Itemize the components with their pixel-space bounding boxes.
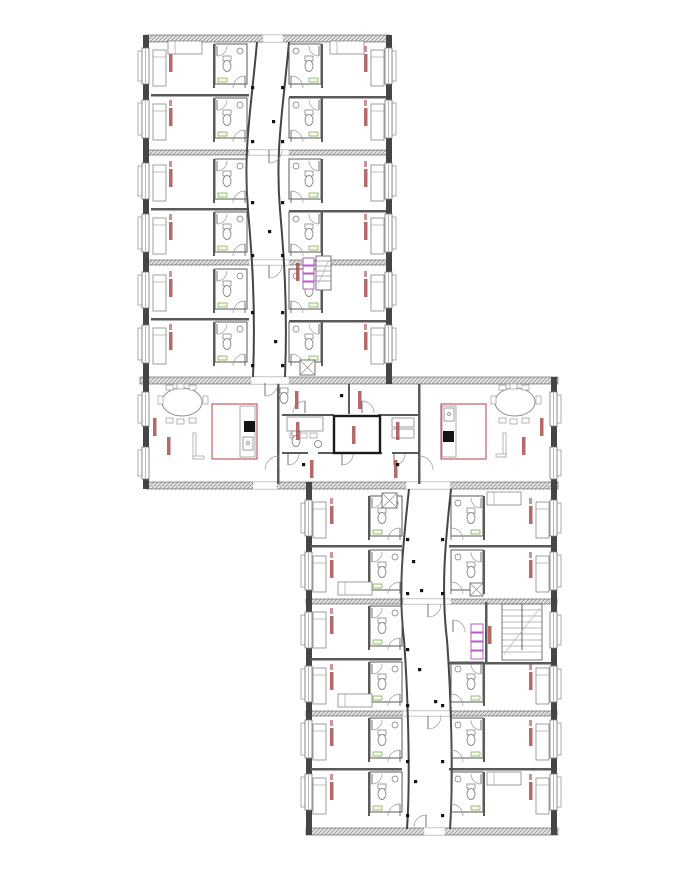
toilet-bowl (378, 735, 386, 746)
room-label-tag-small (169, 214, 172, 220)
room-label-tag-small (364, 161, 367, 167)
window-sill (557, 555, 561, 587)
toilet (467, 730, 475, 746)
door-tag-dot (251, 140, 254, 143)
chair (510, 419, 517, 424)
wall-opening (251, 377, 289, 384)
room-label-tag-small (330, 774, 333, 780)
locker-stack (471, 624, 483, 659)
room-label-tag-small (364, 324, 367, 330)
bed (536, 668, 549, 704)
sink (237, 326, 243, 332)
sink (237, 102, 243, 108)
sink (392, 610, 398, 616)
exterior-wall-hatched (140, 377, 558, 384)
exterior-wall (551, 377, 557, 835)
toilet (305, 224, 313, 240)
toilet (305, 56, 313, 72)
bed (153, 104, 166, 140)
chair (177, 384, 184, 389)
bed (371, 328, 384, 364)
toilet-bowl (223, 115, 231, 126)
window-sill (392, 275, 396, 305)
bed-frame (487, 492, 521, 505)
door-tag-dot (441, 814, 444, 817)
bed (313, 612, 326, 648)
wall-opening (263, 35, 283, 42)
room-label-tag (330, 782, 334, 800)
door-tag-dot (272, 120, 275, 123)
sink (293, 216, 299, 222)
window-sill (138, 103, 142, 135)
shelf-green (373, 752, 382, 756)
room-label-tag-small (169, 324, 172, 330)
bed (536, 724, 549, 760)
toilet (223, 224, 231, 240)
bed (536, 556, 549, 592)
window-sill (557, 615, 561, 645)
door-tag-dot (406, 538, 409, 541)
door-tag-dot (281, 86, 284, 89)
door-tag-dot (251, 201, 254, 204)
room-label-tag (169, 332, 173, 350)
bed (371, 275, 384, 311)
room-label-tag (295, 391, 299, 409)
room-label-tag-small (529, 664, 532, 670)
toilet-bowl (223, 61, 231, 72)
bed (536, 778, 549, 814)
bed-frame (168, 41, 202, 54)
room-label-tag (358, 391, 362, 409)
window (550, 666, 561, 702)
door-tag-dot (281, 140, 284, 143)
bed (153, 218, 166, 254)
shelf-green (471, 696, 480, 700)
window (138, 48, 149, 84)
shelf-green (309, 303, 318, 307)
window (301, 500, 312, 536)
door-tag-dot (281, 201, 284, 204)
locker (303, 282, 314, 289)
window-sill (138, 450, 142, 476)
window (550, 612, 561, 648)
bed-horizontal (338, 582, 372, 595)
window-sill (557, 723, 561, 755)
toilet-bowl (223, 339, 231, 350)
shelf-green (309, 356, 318, 360)
sink (455, 666, 461, 672)
wall-opening (253, 482, 277, 489)
shelf-green (471, 752, 480, 756)
toilet (467, 508, 475, 524)
bed (313, 556, 326, 592)
window-sill (301, 777, 305, 807)
toilet (378, 784, 386, 800)
window-sill (301, 615, 305, 645)
toilet (378, 508, 386, 524)
room-label-tag-small (330, 498, 333, 504)
toilet-bowl (305, 229, 313, 240)
sink (293, 326, 299, 332)
door-tag-dot (302, 463, 305, 466)
room-label-tag (330, 672, 334, 690)
window-sill (392, 328, 396, 360)
shelf-green (218, 356, 227, 360)
room-label-tag (364, 332, 368, 350)
room-label-tag (169, 169, 173, 187)
toilet (305, 334, 313, 350)
door-tag-dot (281, 254, 284, 257)
door-tag-dot (434, 700, 437, 703)
bed-horizontal (338, 694, 372, 707)
chair (189, 385, 196, 390)
interior-wall (378, 414, 420, 416)
window (138, 163, 149, 199)
room-label-tag (529, 506, 533, 524)
sink (237, 163, 243, 169)
window-sill (557, 450, 561, 476)
window (550, 447, 561, 479)
door-tag-dot (420, 589, 423, 592)
toilet-bowl (467, 679, 475, 690)
window-sill (301, 723, 305, 755)
window (138, 272, 149, 308)
sofa-mark (496, 454, 506, 457)
shelf-green (373, 584, 382, 588)
toilet (378, 730, 386, 746)
chair (491, 396, 496, 404)
interior-wall (151, 208, 249, 211)
toilet (467, 674, 475, 690)
table-top (495, 388, 535, 416)
window-sill (301, 555, 305, 587)
shelf-green (471, 530, 480, 534)
bed-frame (487, 772, 521, 785)
interior-wall (311, 768, 402, 771)
window-sill (301, 669, 305, 699)
bed (371, 50, 384, 86)
room-label-tag (352, 426, 356, 444)
room-label-tag (167, 437, 171, 455)
kitchen-sink (444, 408, 454, 421)
room-label-tag (330, 616, 334, 634)
window (138, 447, 149, 479)
bed (313, 502, 326, 538)
window-sill (138, 328, 142, 360)
door-tag-dot (412, 560, 415, 563)
toilet-bowl (223, 229, 231, 240)
toilet (223, 56, 231, 72)
chair (177, 419, 184, 424)
window-sill (301, 503, 305, 533)
door-tag-dot (406, 592, 409, 595)
toilet (223, 110, 231, 126)
window (138, 325, 149, 363)
interior-wall (151, 318, 249, 321)
room-label-tag-small (529, 498, 532, 504)
room-label-tag (364, 279, 368, 297)
bed (153, 165, 166, 201)
chair (536, 396, 541, 404)
bed (313, 668, 326, 704)
bed (536, 502, 549, 538)
toilet-bowl (305, 61, 313, 72)
sink (293, 102, 299, 108)
bed-horizontal (487, 492, 521, 505)
toilet (305, 171, 313, 187)
toilet (280, 388, 288, 404)
door-tag-dot (274, 340, 277, 343)
door-tag-dot (406, 760, 409, 763)
toilet (467, 784, 475, 800)
door-tag-dot (441, 760, 444, 763)
room-label-tag (153, 418, 157, 436)
room-label-tag-small (529, 552, 532, 558)
room-label-tag-small (330, 608, 333, 614)
shelf-green (218, 78, 227, 82)
floor-plan-page (0, 0, 674, 881)
room-label-tag (529, 560, 533, 578)
window (385, 214, 396, 252)
wall-opening (424, 828, 445, 835)
shower-box (300, 360, 315, 375)
bed (153, 50, 166, 86)
chair (203, 396, 208, 404)
room-label-tag-small (169, 161, 172, 167)
room-label-tag (364, 222, 368, 240)
sink (455, 776, 461, 782)
window-sill (138, 217, 142, 249)
window (385, 163, 396, 199)
chair (158, 396, 163, 404)
toilet (223, 171, 231, 187)
window (301, 612, 312, 648)
interior-wall (348, 384, 350, 414)
window-sill (138, 275, 142, 305)
window-sill (392, 166, 396, 196)
room-label-tag (169, 279, 173, 297)
door-tag-dot (396, 463, 399, 466)
bed (313, 778, 326, 814)
window (138, 100, 149, 138)
shower-box (470, 583, 483, 596)
stove (244, 421, 255, 432)
toilet-bowl (378, 567, 386, 578)
room-label-tag (364, 108, 368, 126)
door-tag-dot (406, 704, 409, 707)
door-tag-dot (268, 230, 271, 233)
bed (153, 275, 166, 311)
door-tag-dot (441, 704, 444, 707)
shelf-green (218, 246, 227, 250)
room-label-tag (296, 422, 300, 440)
room-label-tag-small (364, 46, 367, 52)
room-label-tag-small (364, 214, 367, 220)
locker-stack (303, 258, 314, 289)
window-sill (138, 51, 142, 81)
bed (371, 104, 384, 140)
window (385, 100, 396, 138)
bed (371, 165, 384, 201)
window (301, 666, 312, 702)
toilet-bowl (467, 735, 475, 746)
toilet-bowl (305, 176, 313, 187)
toilet-bowl (378, 623, 386, 634)
bed-horizontal (168, 41, 202, 54)
bed-frame (338, 694, 372, 707)
room-label-tag-small (529, 720, 532, 726)
door-tag-dot (418, 668, 421, 671)
interior-wall (392, 452, 420, 454)
room-label-tag (488, 626, 492, 644)
door-tag-dot (340, 394, 343, 397)
room-label-tag (522, 437, 526, 455)
room-label-tag (540, 418, 544, 436)
interior-wall (311, 545, 402, 548)
door-tag-dot (251, 86, 254, 89)
room-label-tag-small (330, 720, 333, 726)
sofa-mark (193, 456, 204, 459)
sink (315, 441, 322, 448)
window-sill (392, 103, 396, 135)
shelf-unit (392, 418, 414, 427)
chair (166, 418, 173, 423)
room-label-tag (296, 263, 300, 281)
window-sill (392, 51, 396, 81)
window (301, 774, 312, 810)
wall-opening (403, 711, 451, 716)
floor-plan-svg (0, 0, 674, 881)
door-tag-dot (441, 592, 444, 595)
bed (371, 218, 384, 254)
locker (471, 633, 483, 641)
room-label-tag (364, 169, 368, 187)
floor-plan-canvas (0, 0, 674, 881)
chair (499, 418, 506, 423)
room-label-tag (310, 460, 314, 478)
chair (189, 418, 196, 423)
staircase (502, 604, 542, 660)
door-tag-dot (281, 364, 284, 367)
sofa-mark (193, 433, 196, 459)
chair (310, 433, 317, 438)
sink (237, 216, 243, 222)
window-sill (138, 166, 142, 196)
shelf-green (218, 303, 227, 307)
room-label-tag (330, 560, 334, 578)
locker (303, 266, 314, 273)
window-sill (557, 503, 561, 533)
shelf-green (373, 640, 382, 644)
sink (293, 163, 299, 169)
bed-horizontal (487, 772, 521, 785)
window-sill (138, 395, 142, 423)
sink (392, 776, 398, 782)
desk-top (287, 417, 323, 431)
shelf-green (373, 806, 382, 810)
toilet (223, 281, 231, 297)
shelf-green (373, 530, 382, 534)
window (301, 720, 312, 758)
table-top (162, 388, 202, 416)
door-tag-dot (251, 254, 254, 257)
toilet (467, 562, 475, 578)
toilet-bowl (223, 286, 231, 297)
bed (153, 328, 166, 364)
interior-wall (449, 768, 551, 771)
window (550, 774, 561, 810)
sink (293, 48, 299, 54)
toilet-bowl (223, 176, 231, 187)
sink (455, 554, 461, 560)
sink (392, 554, 398, 560)
room-label-tag (529, 728, 533, 746)
locker (471, 642, 483, 650)
shelf-green (309, 193, 318, 197)
window (385, 325, 396, 363)
toilet (223, 334, 231, 350)
chair (300, 433, 307, 438)
door-tag-dot (441, 538, 444, 541)
bed-horizontal (330, 41, 364, 54)
sink (455, 722, 461, 728)
bed-frame (330, 41, 364, 54)
stove (443, 431, 454, 442)
room-label-tag-small (364, 271, 367, 277)
bed (313, 724, 326, 760)
toilet-bowl (378, 789, 386, 800)
sink (392, 666, 398, 672)
sink (455, 500, 461, 506)
shelf-unit (392, 429, 414, 438)
room-label-tag (364, 54, 368, 72)
room-label-tag-small (529, 774, 532, 780)
window (138, 392, 149, 426)
sofa-mark (503, 433, 506, 457)
door-tag-dot (406, 814, 409, 817)
interior-wall (282, 414, 334, 416)
window (301, 552, 312, 590)
shelf-green (471, 806, 480, 810)
exterior-wall-hatched (146, 482, 558, 489)
interior-wall (151, 94, 249, 97)
locker (303, 274, 314, 281)
toilet-bowl (467, 513, 475, 524)
room-label-tag-small (330, 664, 333, 670)
interior-wall (311, 658, 402, 661)
room-label-tag (330, 506, 334, 524)
toilet (378, 618, 386, 634)
door-tag-dot (406, 648, 409, 651)
shelf-green (218, 132, 227, 136)
window (385, 48, 396, 84)
door-tag-dot (281, 311, 284, 314)
shelf-green (218, 193, 227, 197)
toilet-bowl (305, 115, 313, 126)
shower-box (382, 493, 397, 508)
window (550, 720, 561, 758)
toilet-bowl (280, 393, 288, 404)
toilet-bowl (305, 339, 313, 350)
room-label-tag (396, 422, 400, 440)
locker (303, 258, 314, 265)
toilet-bowl (378, 679, 386, 690)
background (0, 0, 674, 881)
kitchen-sink (243, 437, 253, 450)
toilet (378, 674, 386, 690)
room-label-tag-small (330, 552, 333, 558)
chair (522, 418, 529, 423)
